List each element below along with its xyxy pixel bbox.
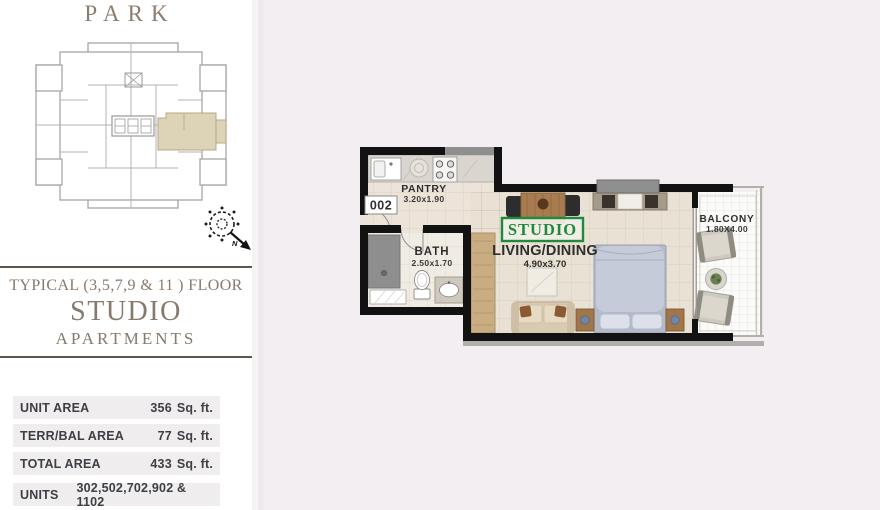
sliding-door: [693, 208, 697, 319]
living-dining-dims: 4.90x3.70: [524, 259, 567, 270]
unit-number: 002: [370, 199, 392, 213]
row-value: 356: [150, 401, 171, 415]
area-table: UNIT AREA 356 Sq. ft. TERR/BAL AREA 77 S…: [13, 396, 220, 510]
table-row-unit-area: UNIT AREA 356 Sq. ft.: [13, 396, 220, 419]
bed: [594, 245, 666, 333]
row-label: TERR/BAL AREA: [20, 429, 124, 443]
living-dining-label: LIVING/DINING: [492, 243, 598, 259]
row-label: UNITS: [20, 488, 59, 502]
desk: [593, 193, 667, 210]
divider-line-top: [0, 266, 252, 268]
unit-type-heading: STUDIO: [0, 296, 252, 328]
compass-icon: N: [200, 206, 258, 258]
building-key-plan: [28, 40, 234, 212]
studio-tag-label: STUDIO: [508, 220, 577, 239]
row-value: 302,502,702,902 & 1102: [77, 481, 214, 509]
coffee-table: [527, 268, 557, 296]
plan-bottom-shadow: [463, 341, 764, 346]
vanity-sink: [435, 277, 463, 303]
row-value: 77: [158, 429, 172, 443]
brochure-page: PARK: [0, 0, 880, 510]
row-unit: Sq. ft.: [177, 401, 213, 415]
floor-heading: TYPICAL (3,5,7,9 & 11 ) FLOOR: [0, 277, 252, 295]
balcony-dims: 1.80X4.00: [706, 224, 748, 234]
row-label: UNIT AREA: [20, 401, 89, 415]
apartments-heading: APARTMENTS: [0, 329, 252, 349]
brand-title: PARK: [0, 1, 252, 27]
divider-line-bottom: [0, 356, 252, 358]
info-panel: PARK: [0, 0, 258, 510]
table-row-units: UNITS 302,502,702,902 & 1102: [13, 483, 220, 506]
row-unit: Sq. ft.: [177, 457, 213, 471]
studio-floor-plan: 002 STUDIO PANTRY 3.20x1.90 BATH 2.50x1.…: [355, 138, 775, 350]
wardrobe: [597, 180, 659, 193]
bath-dims: 2.50x1.70: [412, 258, 453, 268]
studio-tag: STUDIO: [502, 218, 583, 241]
table-row-total-area: TOTAL AREA 433 Sq. ft.: [13, 452, 220, 475]
north-label: N: [232, 239, 238, 248]
table-row-terr-bal-area: TERR/BAL AREA 77 Sq. ft.: [13, 424, 220, 447]
balcony-plant-table: [706, 269, 727, 290]
bath-label: BATH: [414, 246, 449, 258]
kitchen-counter: [368, 155, 496, 182]
pantry-dims: 3.20x1.90: [404, 194, 445, 204]
row-value: 433: [150, 457, 171, 471]
keyplan-highlighted-unit: [158, 113, 226, 150]
bath-mat: [370, 290, 406, 304]
balcony-chair-bottom: [694, 290, 734, 325]
unit-number-box: 002: [365, 196, 397, 214]
row-label: TOTAL AREA: [20, 457, 101, 471]
plan-heading: TYPICAL (3,5,7,9 & 11 ) FLOOR STUDIO APA…: [0, 277, 252, 349]
toilet: [414, 271, 430, 300]
sofa: [512, 302, 574, 334]
shower: [368, 235, 400, 288]
row-unit: Sq. ft.: [177, 429, 213, 443]
